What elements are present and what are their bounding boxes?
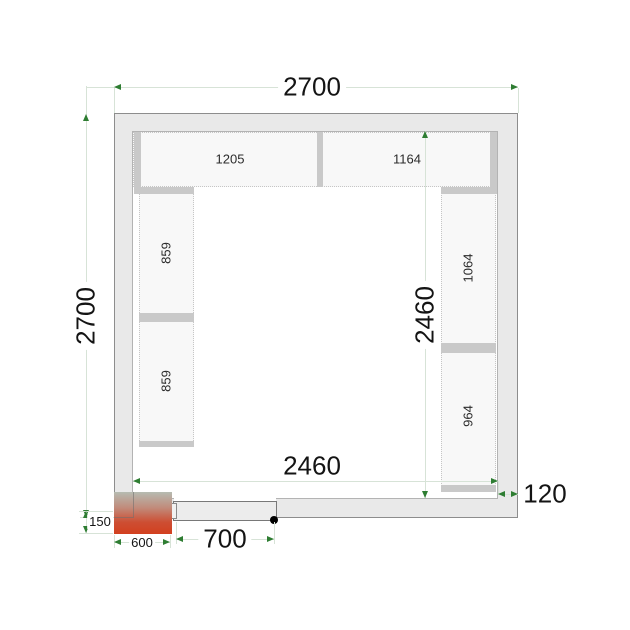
shelf-segment-label: 964 xyxy=(461,405,476,427)
dim-arrow-right-icon xyxy=(267,536,274,542)
floor-plan-canvas: 1205 1164 859 859 1064 964 2700 2700 246… xyxy=(0,0,630,630)
cooling-unit[interactable] xyxy=(114,492,172,534)
dim-door-width-label: 700 xyxy=(198,525,251,552)
shelf-band-right[interactable] xyxy=(441,187,496,492)
wall-edge-overlay-line xyxy=(114,517,133,518)
dim-wall-thickness-label: 120 xyxy=(518,480,571,507)
dim-extension-line xyxy=(518,88,519,113)
shelf-segment-label: 859 xyxy=(159,242,174,264)
dim-arrow-left-icon xyxy=(498,491,505,497)
dim-extension-line xyxy=(170,535,171,548)
shelf-divider-right xyxy=(441,343,496,353)
dim-arrow-down-icon xyxy=(422,491,428,498)
dim-arrow-left-icon xyxy=(176,536,183,542)
dim-outer-depth-label: 2700 xyxy=(72,282,99,350)
dim-line-inner-width xyxy=(133,481,498,482)
shelf-segment-label: 1205 xyxy=(216,152,245,167)
shelf-post-top-middle xyxy=(317,132,323,187)
dim-extension-line xyxy=(79,533,113,534)
shelf-post-top-right xyxy=(490,132,497,194)
dim-arrow-left-icon xyxy=(133,478,140,484)
shelf-segment-label: 859 xyxy=(159,370,174,392)
dim-unit-width-label: 600 xyxy=(129,536,155,550)
dim-arrow-left-icon xyxy=(114,539,121,545)
dim-arrow-right-icon xyxy=(511,491,518,497)
shelf-cap-left-bottom xyxy=(139,441,194,447)
dim-extension-line xyxy=(274,522,275,544)
dim-extension-line xyxy=(114,88,115,113)
dim-arrow-up-icon xyxy=(83,114,89,121)
shelf-cap-left-top xyxy=(139,187,194,194)
door-leaf[interactable] xyxy=(173,501,277,521)
shelf-segment-label: 1164 xyxy=(393,152,421,167)
shelf-cap-right-top xyxy=(441,187,496,194)
dim-outer-width-label: 2700 xyxy=(278,73,346,100)
shelf-cap-right-bottom xyxy=(441,485,496,492)
shelf-band-top[interactable] xyxy=(133,132,497,187)
shelf-segment-label: 1064 xyxy=(461,254,476,283)
dim-inner-width-label: 2460 xyxy=(278,452,346,479)
dim-arrow-right-icon xyxy=(511,84,518,90)
dim-arrow-up-icon xyxy=(422,131,428,138)
dim-arrow-right-icon xyxy=(491,478,498,484)
dim-arrow-right-icon xyxy=(163,539,170,545)
wall-edge-overlay-line xyxy=(133,492,134,518)
dim-unit-protrusion-label: 150 xyxy=(87,515,113,529)
dim-inner-depth-label: 2460 xyxy=(411,281,438,349)
shelf-post-top-left xyxy=(134,132,141,194)
dim-arrow-left-icon xyxy=(114,84,121,90)
shelf-divider-left xyxy=(139,313,194,322)
